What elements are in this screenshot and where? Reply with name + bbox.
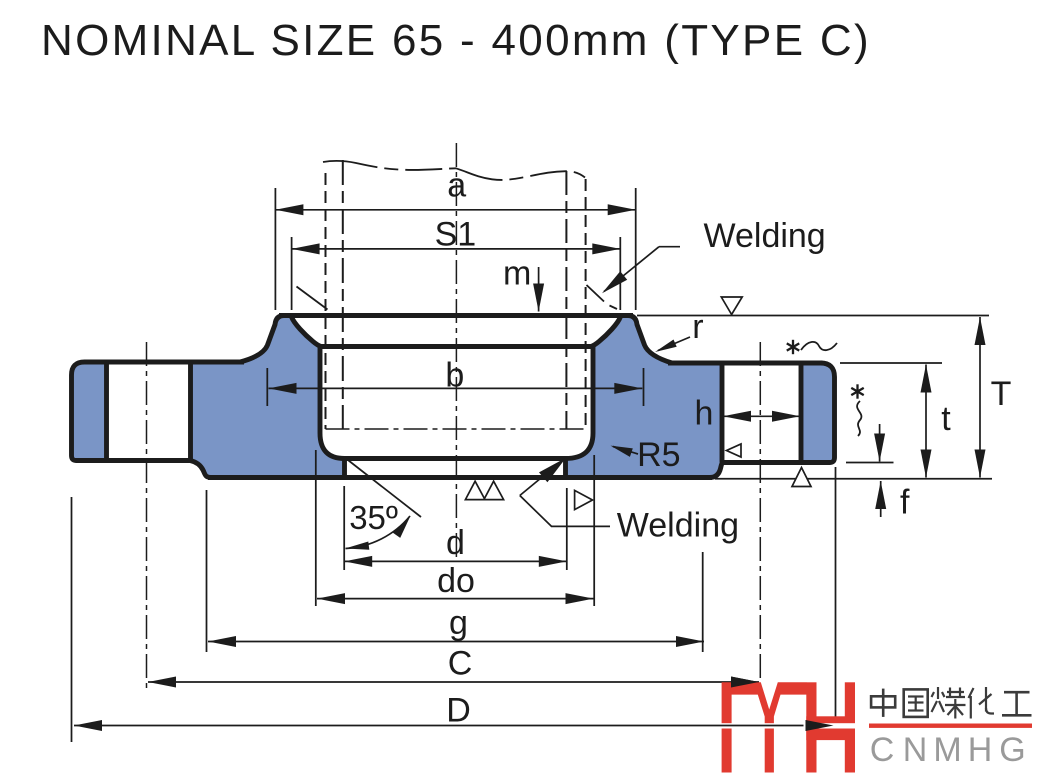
svg-text:R5: R5 (637, 436, 680, 474)
svg-text:35º: 35º (349, 499, 398, 536)
svg-text:m: m (503, 255, 531, 293)
svg-text:do: do (437, 562, 475, 600)
svg-text:C: C (448, 645, 473, 683)
svg-text:M: M (933, 731, 961, 769)
svg-text:r: r (692, 308, 703, 346)
svg-text:D: D (446, 692, 471, 730)
svg-text:G: G (999, 731, 1025, 769)
svg-text:NOMINAL SIZE 65 - 400mm (TYPE: NOMINAL SIZE 65 - 400mm (TYPE C) (41, 16, 871, 65)
svg-text:S1: S1 (435, 216, 477, 254)
svg-text:H: H (968, 731, 993, 769)
svg-text:a: a (447, 167, 466, 205)
svg-text:h: h (695, 395, 714, 433)
svg-text:t: t (941, 400, 951, 438)
svg-text:Welding: Welding (617, 506, 739, 544)
svg-text:C: C (870, 731, 895, 769)
svg-text:T: T (991, 375, 1012, 413)
svg-text:N: N (903, 731, 928, 769)
svg-text:d: d (446, 524, 465, 562)
svg-text:Welding: Welding (704, 217, 826, 255)
svg-text:f: f (900, 484, 910, 522)
svg-text:b: b (445, 357, 464, 395)
svg-text:g: g (449, 604, 468, 642)
